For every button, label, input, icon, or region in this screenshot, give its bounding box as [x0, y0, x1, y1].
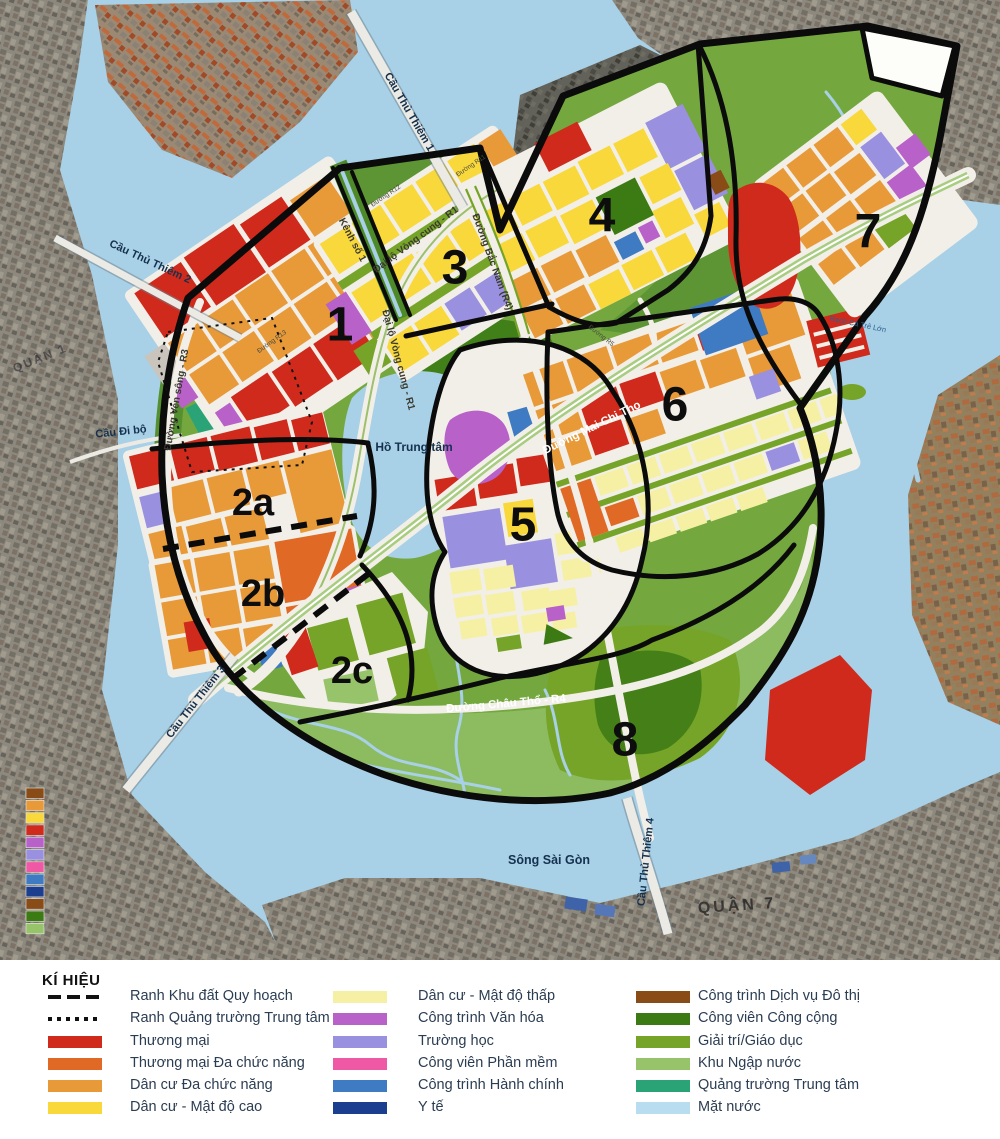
- legend-swatch: [636, 1036, 690, 1048]
- planning-map: 12a2b2c345678Cầu Thủ Thiêm 1Cầu Thủ Thiê…: [0, 0, 1000, 960]
- zone-label-2c: 2c: [331, 650, 373, 692]
- zone-label-3: 3: [442, 242, 469, 295]
- edge-legend-swatch: [26, 813, 44, 824]
- legend-label: Thương mại: [130, 1033, 210, 1049]
- edge-legend-swatch: [26, 800, 44, 811]
- legend-swatch: [48, 1080, 102, 1092]
- legend-swatch: [636, 1013, 690, 1025]
- edge-legend-swatch: [26, 899, 44, 910]
- edge-legend-swatch: [26, 788, 44, 799]
- zone-label-4: 4: [589, 190, 616, 243]
- edge-legend-swatch: [26, 862, 44, 873]
- legend-swatch: [48, 995, 102, 999]
- legend-label: Công viên Công cộng: [698, 1010, 837, 1026]
- legend-swatch: [333, 1080, 387, 1092]
- screenshot: 12a2b2c345678Cầu Thủ Thiêm 1Cầu Thủ Thiê…: [0, 0, 1000, 1139]
- legend-swatch: [636, 991, 690, 1003]
- legend-label: Dân cư - Mật độ cao: [130, 1099, 262, 1115]
- zone-label-5: 5: [510, 499, 537, 552]
- legend-swatch: [333, 1013, 387, 1025]
- edge-legend-swatch: [26, 850, 44, 861]
- zone-label-1: 1: [327, 299, 354, 352]
- legend-title: KÍ HIỆU: [42, 972, 101, 989]
- legend-label: Khu Ngập nước: [698, 1055, 801, 1071]
- legend-label: Ranh Khu đất Quy hoạch: [130, 988, 293, 1004]
- legend-swatch: [48, 1058, 102, 1070]
- map-label: Hồ Trung tâm: [375, 440, 452, 454]
- legend-label: Dân cư - Mật độ thấp: [418, 988, 555, 1004]
- edge-legend-swatch: [26, 911, 44, 922]
- zone-label-8: 8: [612, 714, 639, 767]
- legend-swatch: [636, 1102, 690, 1114]
- legend: KÍ HIỆU Ranh Khu đất Quy hoạchRanh Quảng…: [0, 960, 1000, 1139]
- legend-label: Mặt nước: [698, 1099, 761, 1115]
- legend-swatch: [48, 1036, 102, 1048]
- legend-swatch: [333, 1036, 387, 1048]
- edge-legend-swatch: [26, 825, 44, 836]
- legend-label: Công viên Phần mềm: [418, 1055, 557, 1071]
- legend-label: Công trình Dịch vụ Đô thị: [698, 988, 860, 1004]
- legend-label: Công trình Văn hóa: [418, 1010, 544, 1026]
- legend-swatch: [48, 1102, 102, 1114]
- zone-label-2b: 2b: [241, 573, 285, 615]
- edge-legend-swatch: [26, 923, 44, 934]
- edge-legend-swatch: [26, 874, 44, 885]
- legend-swatch: [333, 1058, 387, 1070]
- legend-swatch: [636, 1080, 690, 1092]
- legend-label: Ranh Quảng trường Trung tâm: [130, 1010, 330, 1026]
- legend-label: Giải trí/Giáo dục: [698, 1033, 803, 1049]
- map-label: Sông Sài Gòn: [508, 853, 590, 867]
- legend-label: Quảng trường Trung tâm: [698, 1077, 859, 1093]
- legend-swatch: [636, 1058, 690, 1070]
- legend-label: Dân cư Đa chức năng: [130, 1077, 273, 1093]
- zone-label-7: 7: [855, 206, 882, 259]
- legend-swatch: [48, 1017, 102, 1021]
- zone-label-6: 6: [662, 379, 689, 432]
- legend-label: Trường học: [418, 1033, 494, 1049]
- edge-legend-swatch: [26, 837, 44, 848]
- legend-label: Y tế: [418, 1099, 444, 1115]
- legend-label: Công trình Hành chính: [418, 1077, 564, 1093]
- legend-swatch: [333, 991, 387, 1003]
- legend-label: Thương mại Đa chức năng: [130, 1055, 305, 1071]
- zone-label-2a: 2a: [232, 482, 275, 524]
- legend-swatch: [333, 1102, 387, 1114]
- edge-legend-swatch: [26, 886, 44, 897]
